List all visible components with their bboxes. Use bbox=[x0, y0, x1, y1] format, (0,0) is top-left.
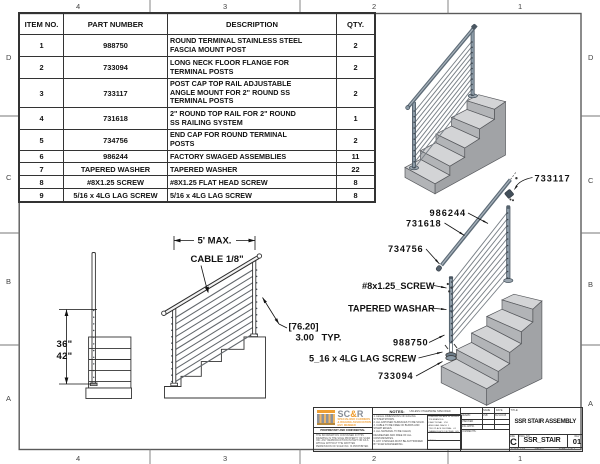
svg-text:4: 4 bbox=[76, 2, 80, 11]
svg-text:3.00: 3.00 bbox=[296, 333, 315, 344]
svg-text:#8x1.25_SCREW: #8x1.25_SCREW bbox=[362, 281, 435, 291]
svg-text:TAPERED WASHAR: TAPERED WASHAR bbox=[348, 304, 435, 314]
svg-text:A: A bbox=[6, 394, 11, 403]
svg-text:733094: 733094 bbox=[378, 371, 414, 381]
svg-text:5_16 x 4LG LAG SCREW: 5_16 x 4LG LAG SCREW bbox=[309, 354, 417, 364]
svg-text:1: 1 bbox=[518, 454, 522, 463]
svg-text:2: 2 bbox=[372, 454, 376, 463]
svg-text:3: 3 bbox=[223, 2, 227, 11]
svg-text:CABLE 1/8": CABLE 1/8" bbox=[191, 254, 244, 265]
svg-text:42": 42" bbox=[57, 351, 73, 362]
svg-text:D: D bbox=[588, 53, 594, 62]
svg-text:B: B bbox=[6, 277, 11, 286]
svg-text:C: C bbox=[588, 176, 594, 185]
svg-text:731618: 731618 bbox=[406, 219, 441, 229]
svg-text:734756: 734756 bbox=[388, 244, 423, 254]
svg-text:3: 3 bbox=[223, 454, 227, 463]
svg-text:733117: 733117 bbox=[535, 174, 571, 184]
svg-text:D: D bbox=[6, 53, 12, 62]
svg-text:[76.20]: [76.20] bbox=[289, 322, 319, 333]
svg-text:5' MAX.: 5' MAX. bbox=[198, 236, 232, 247]
svg-text:B: B bbox=[588, 280, 593, 289]
svg-text:2: 2 bbox=[372, 2, 376, 11]
svg-text:4: 4 bbox=[76, 454, 80, 463]
svg-text:TYP.: TYP. bbox=[322, 333, 342, 344]
svg-text:988750: 988750 bbox=[393, 338, 428, 348]
svg-text:A: A bbox=[588, 399, 593, 408]
svg-text:C: C bbox=[6, 173, 12, 182]
svg-text:36": 36" bbox=[57, 339, 73, 350]
svg-text:1: 1 bbox=[518, 2, 522, 11]
svg-text:986244: 986244 bbox=[430, 208, 467, 218]
